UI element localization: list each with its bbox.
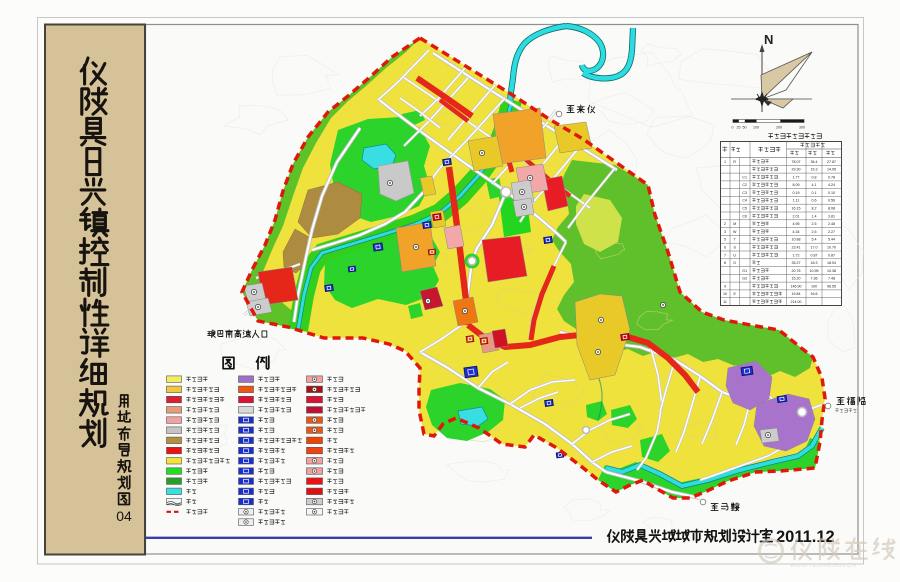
svg-text:15.20: 15.20 — [792, 277, 801, 281]
svg-text:0: 0 — [732, 126, 734, 130]
svg-text:78.07: 78.07 — [792, 160, 801, 164]
svg-text:2.27: 2.27 — [828, 230, 835, 234]
svg-text:50: 50 — [743, 126, 747, 130]
svg-text:4.1: 4.1 — [812, 183, 817, 187]
svg-text:1.72: 1.72 — [793, 253, 800, 257]
svg-text:2: 2 — [724, 222, 726, 226]
svg-text:C5: C5 — [742, 207, 747, 211]
svg-text:17.0: 17.0 — [811, 246, 818, 250]
svg-text:8.08: 8.08 — [828, 207, 835, 211]
svg-text:2.5: 2.5 — [812, 222, 817, 226]
svg-text:0.19: 0.19 — [793, 191, 800, 195]
svg-text:16.6: 16.6 — [811, 292, 818, 296]
svg-text:8.09: 8.09 — [793, 183, 800, 187]
svg-text:C4: C4 — [742, 199, 747, 203]
svg-text:29.30: 29.30 — [792, 168, 801, 172]
svg-text:10.38: 10.38 — [827, 269, 836, 273]
svg-text:1.11: 1.11 — [793, 199, 800, 203]
svg-text:20.76: 20.76 — [792, 269, 801, 273]
svg-text:18.3: 18.3 — [811, 261, 818, 265]
svg-text:18.04: 18.04 — [827, 261, 836, 265]
svg-text:4.24: 4.24 — [828, 183, 835, 187]
svg-text:U: U — [733, 253, 736, 257]
svg-text:23.41: 23.41 — [792, 246, 801, 250]
svg-text:0.8: 0.8 — [812, 175, 817, 179]
svg-text:1.77: 1.77 — [793, 175, 800, 179]
svg-text:11: 11 — [723, 300, 727, 304]
svg-text:5: 5 — [724, 238, 726, 242]
svg-text:G1: G1 — [742, 269, 747, 273]
svg-text:04: 04 — [116, 508, 132, 524]
svg-text:200: 200 — [776, 126, 782, 130]
svg-text:G2: G2 — [742, 277, 747, 281]
svg-text:M: M — [733, 222, 736, 226]
svg-text:1.4: 1.4 — [812, 214, 817, 218]
svg-text:3.81: 3.81 — [828, 214, 835, 218]
svg-text:27.87: 27.87 — [827, 160, 836, 164]
svg-text:9: 9 — [724, 284, 726, 288]
svg-text:96.55: 96.55 — [827, 284, 836, 288]
svg-text:C3: C3 — [742, 191, 747, 195]
svg-text:10.95: 10.95 — [810, 269, 819, 273]
svg-text:1: 1 — [724, 160, 726, 164]
svg-text:36.4: 36.4 — [811, 160, 818, 164]
svg-text:7.36: 7.36 — [811, 277, 818, 281]
svg-text:0.6: 0.6 — [812, 199, 817, 203]
svg-text:0.87: 0.87 — [828, 253, 835, 257]
svg-text:5.4: 5.4 — [812, 238, 817, 242]
svg-text:7: 7 — [724, 253, 726, 257]
svg-text:0.87: 0.87 — [811, 253, 818, 257]
svg-text:300: 300 — [799, 126, 805, 130]
svg-text:N: N — [764, 32, 773, 47]
svg-text:C2: C2 — [742, 183, 747, 187]
svg-text:100: 100 — [811, 284, 817, 288]
svg-text:14.05: 14.05 — [827, 168, 836, 172]
svg-text:146.90: 146.90 — [791, 284, 802, 288]
svg-text:C6: C6 — [742, 214, 747, 218]
svg-text:16.15: 16.15 — [792, 207, 801, 211]
svg-text:10.70: 10.70 — [827, 246, 836, 250]
svg-text:35.27: 35.27 — [792, 261, 801, 265]
svg-text:15.3: 15.3 — [811, 168, 818, 172]
svg-text:4.95: 4.95 — [793, 222, 800, 226]
svg-text:G: G — [733, 261, 736, 265]
svg-text:WWW.YILONG.GOV.CN: WWW.YILONG.GOV.CN — [790, 563, 856, 569]
svg-text:0.78: 0.78 — [828, 175, 835, 179]
svg-text:C1: C1 — [742, 175, 747, 179]
svg-text:0.10: 0.10 — [828, 191, 835, 195]
svg-text:0.1: 0.1 — [812, 191, 817, 195]
svg-text:0.56: 0.56 — [828, 199, 835, 203]
svg-text:7.48: 7.48 — [828, 277, 835, 281]
svg-text:214.00: 214.00 — [791, 300, 802, 304]
svg-text:8: 8 — [724, 261, 726, 265]
svg-text:100: 100 — [753, 126, 759, 130]
svg-text:10.88: 10.88 — [792, 238, 801, 242]
svg-text:25: 25 — [737, 126, 741, 130]
svg-text:2.48: 2.48 — [828, 222, 835, 226]
svg-text:3: 3 — [724, 230, 726, 234]
svg-text:2.01: 2.01 — [793, 214, 800, 218]
svg-text:6: 6 — [724, 246, 726, 250]
svg-text:2.5: 2.5 — [812, 230, 817, 234]
svg-text:19.84: 19.84 — [792, 292, 801, 296]
svg-text:10: 10 — [723, 292, 727, 296]
svg-text:5.44: 5.44 — [828, 238, 835, 242]
svg-text:R: R — [733, 160, 736, 164]
svg-text:4.34: 4.34 — [793, 230, 800, 234]
svg-text:8.2: 8.2 — [812, 207, 817, 211]
svg-text:W: W — [733, 230, 737, 234]
